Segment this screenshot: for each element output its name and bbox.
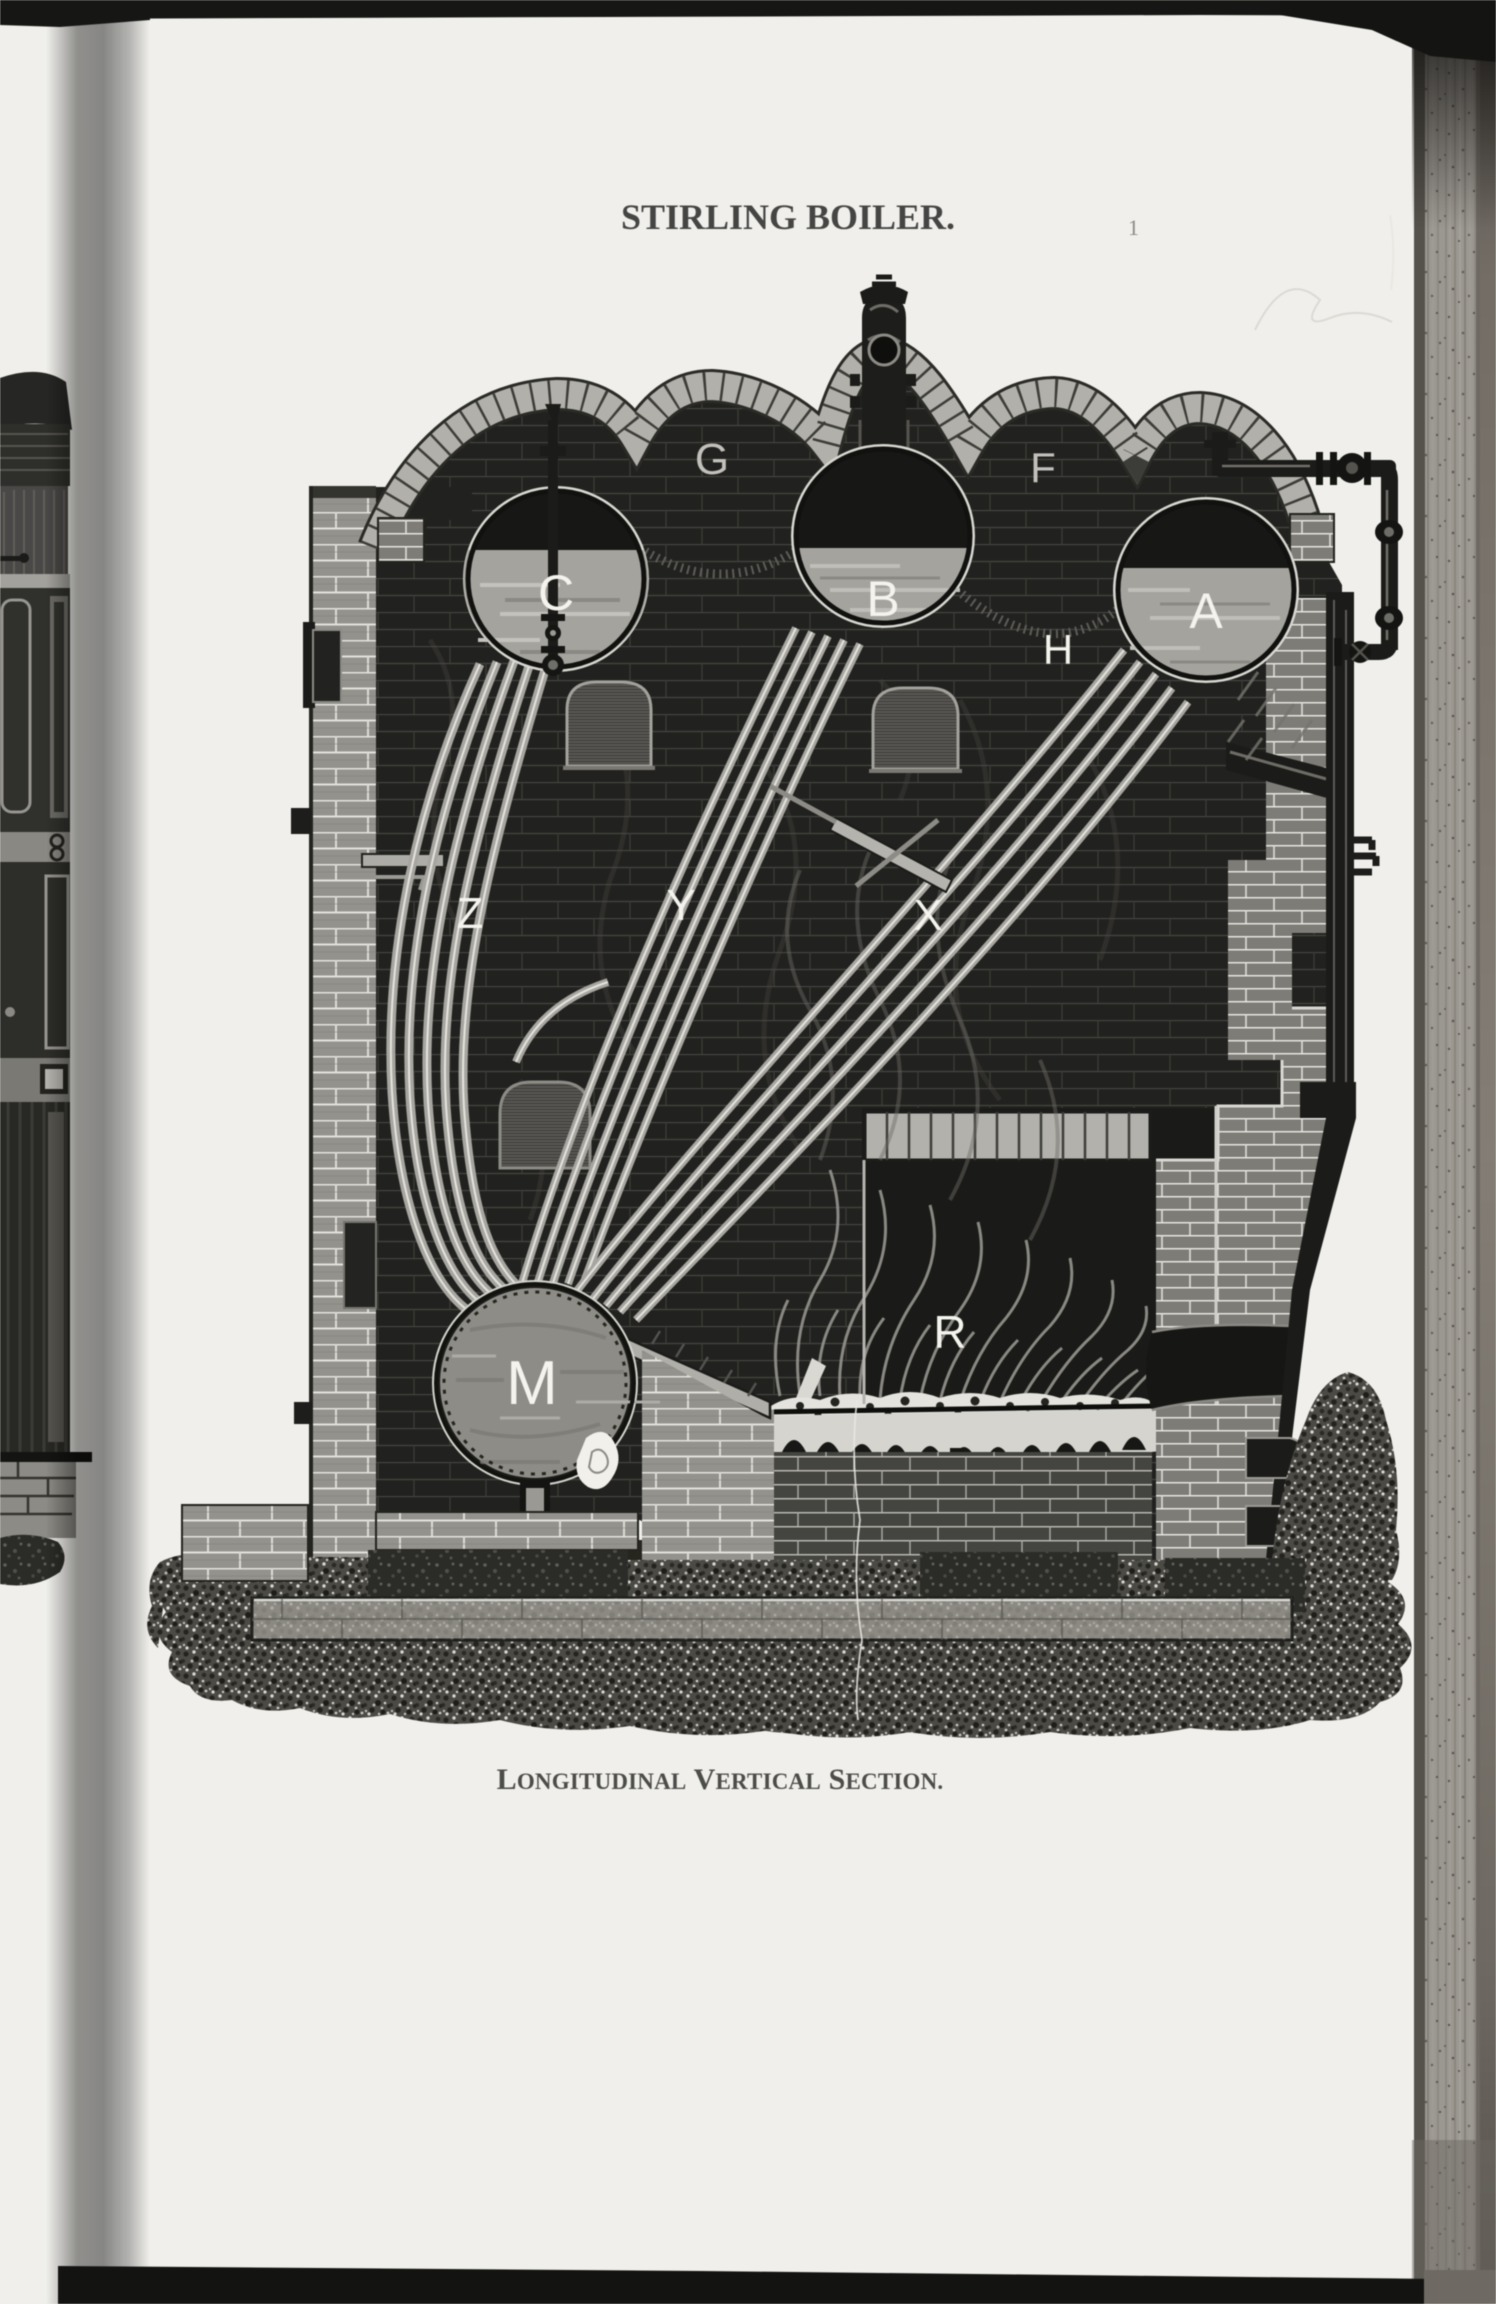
svg-text:A: A [1189,583,1223,639]
svg-text:H: H [1043,626,1073,673]
svg-text:Z: Z [457,889,484,938]
svg-text:B: B [866,571,899,627]
svg-text:1: 1 [1128,215,1139,240]
svg-text:X: X [913,891,942,940]
svg-text:G: G [695,435,729,484]
svg-text:STIRLING BOILER.: STIRLING BOILER. [621,197,955,237]
svg-text:M: M [506,1349,558,1418]
svg-text:C: C [538,565,574,621]
svg-text:F: F [1030,444,1056,491]
svg-text:Y: Y [666,881,695,930]
svg-text:R: R [933,1306,966,1358]
